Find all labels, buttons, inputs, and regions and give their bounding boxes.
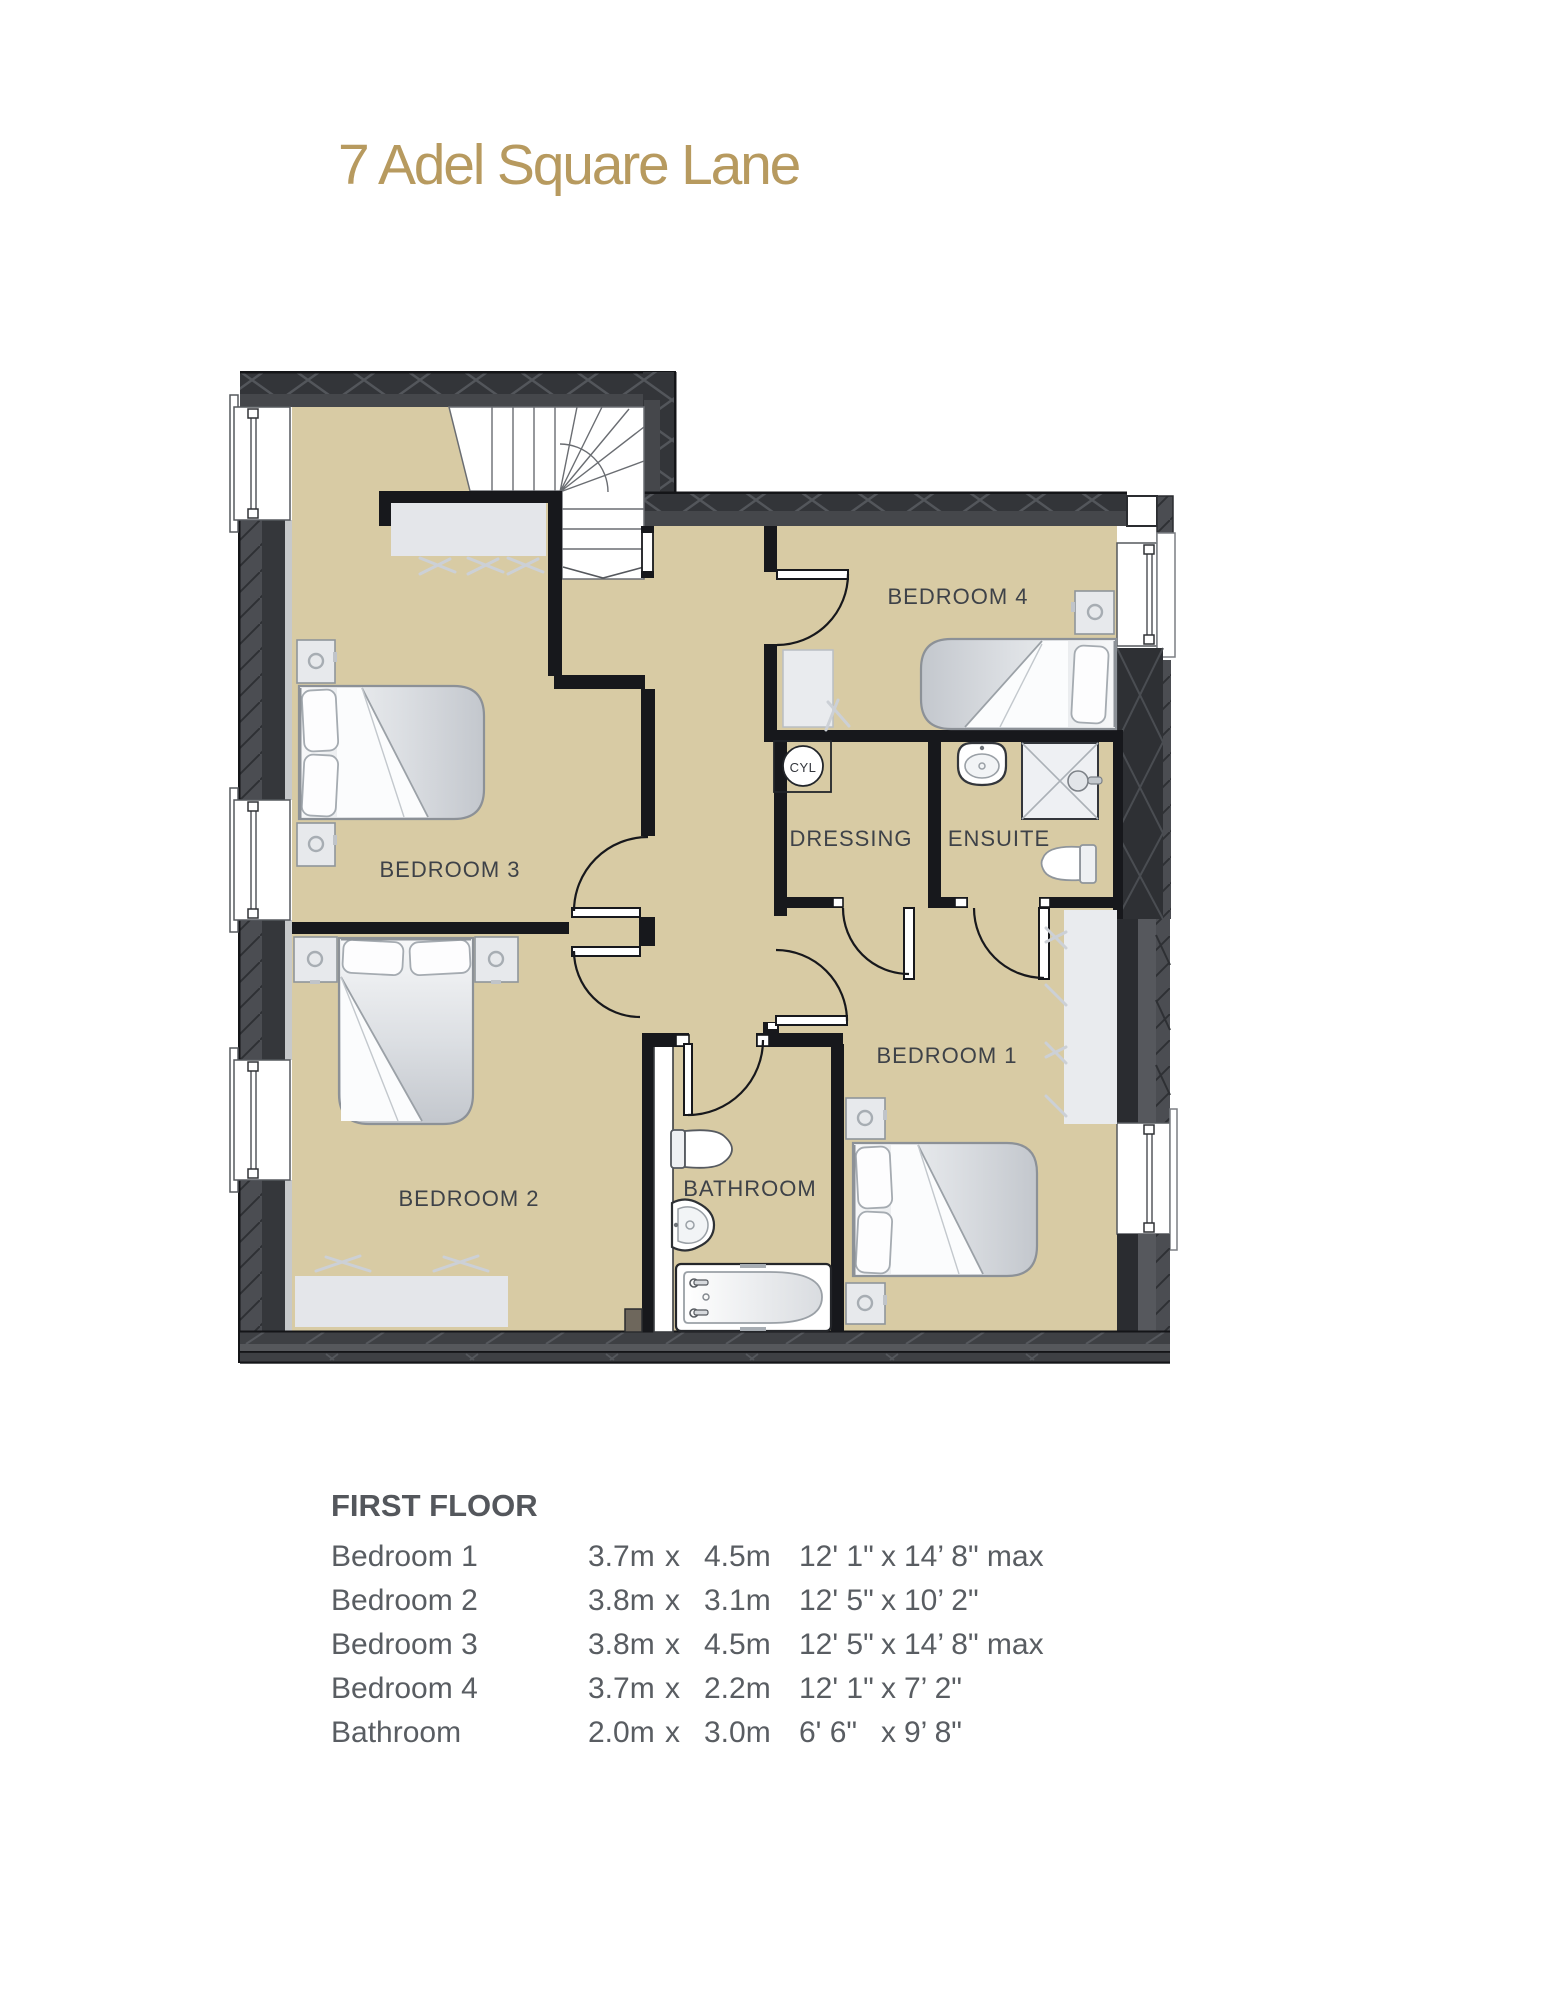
svg-text:10’ 2": 10’ 2" bbox=[904, 1584, 979, 1617]
svg-text:x: x bbox=[881, 1540, 896, 1573]
svg-text:x: x bbox=[881, 1584, 896, 1617]
svg-text:Bedroom 1: Bedroom 1 bbox=[331, 1540, 478, 1573]
svg-text:FIRST FLOOR: FIRST FLOOR bbox=[331, 1488, 538, 1523]
svg-text:BEDROOM 3: BEDROOM 3 bbox=[379, 857, 520, 882]
svg-text:3.0m: 3.0m bbox=[704, 1716, 771, 1749]
svg-text:3.8m: 3.8m bbox=[588, 1628, 655, 1661]
svg-text:9’ 8": 9’ 8" bbox=[904, 1716, 962, 1749]
svg-text:Bedroom 3: Bedroom 3 bbox=[331, 1628, 478, 1661]
svg-text:CYL: CYL bbox=[790, 760, 817, 775]
svg-text:x: x bbox=[665, 1540, 680, 1573]
svg-text:12' 1": 12' 1" bbox=[799, 1540, 874, 1573]
svg-text:BEDROOM 4: BEDROOM 4 bbox=[887, 584, 1028, 609]
svg-text:BATHROOM: BATHROOM bbox=[683, 1176, 816, 1201]
svg-text:4.5m: 4.5m bbox=[704, 1628, 771, 1661]
svg-text:12' 5": 12' 5" bbox=[799, 1628, 874, 1661]
svg-text:BEDROOM 1: BEDROOM 1 bbox=[876, 1043, 1017, 1068]
svg-text:14’ 8" max: 14’ 8" max bbox=[904, 1540, 1044, 1573]
svg-text:x: x bbox=[881, 1628, 896, 1661]
svg-text:x: x bbox=[665, 1716, 680, 1749]
svg-text:3.8m: 3.8m bbox=[588, 1584, 655, 1617]
svg-text:x: x bbox=[665, 1628, 680, 1661]
svg-text:ENSUITE: ENSUITE bbox=[948, 826, 1050, 851]
svg-text:3.1m: 3.1m bbox=[704, 1584, 771, 1617]
svg-text:DRESSING: DRESSING bbox=[790, 826, 913, 851]
svg-text:7’ 2": 7’ 2" bbox=[904, 1672, 962, 1705]
svg-text:6' 6": 6' 6" bbox=[799, 1716, 857, 1749]
svg-text:Bedroom 4: Bedroom 4 bbox=[331, 1672, 478, 1705]
svg-text:x: x bbox=[665, 1672, 680, 1705]
svg-text:3.7m: 3.7m bbox=[588, 1540, 655, 1573]
svg-text:BEDROOM 2: BEDROOM 2 bbox=[398, 1186, 539, 1211]
svg-text:12' 1": 12' 1" bbox=[799, 1672, 874, 1705]
svg-text:4.5m: 4.5m bbox=[704, 1540, 771, 1573]
svg-text:3.7m: 3.7m bbox=[588, 1672, 655, 1705]
svg-text:2.2m: 2.2m bbox=[704, 1672, 771, 1705]
svg-text:x: x bbox=[881, 1672, 896, 1705]
svg-text:7 Adel Square Lane: 7 Adel Square Lane bbox=[338, 133, 800, 197]
svg-text:Bedroom 2: Bedroom 2 bbox=[331, 1584, 478, 1617]
svg-text:x: x bbox=[665, 1584, 680, 1617]
svg-text:x: x bbox=[881, 1716, 896, 1749]
svg-text:14’ 8" max: 14’ 8" max bbox=[904, 1628, 1044, 1661]
svg-text:12' 5": 12' 5" bbox=[799, 1584, 874, 1617]
svg-text:Bathroom: Bathroom bbox=[331, 1716, 461, 1749]
svg-text:2.0m: 2.0m bbox=[588, 1716, 655, 1749]
